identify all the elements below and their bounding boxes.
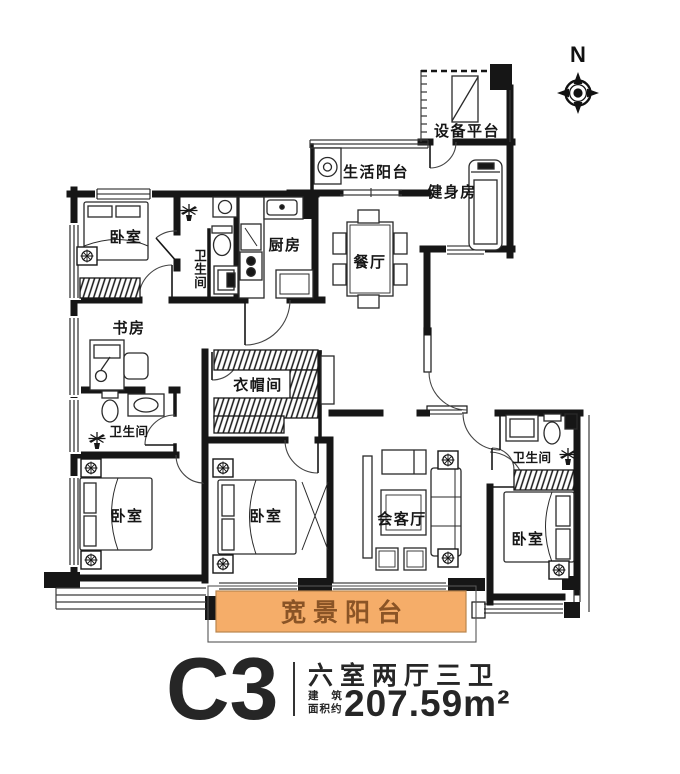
compass-north-label: N <box>570 42 586 67</box>
room-label-bath-east: 卫生间 <box>512 450 551 465</box>
room-label-living: 会客厅 <box>377 510 427 528</box>
compass: N <box>557 42 599 114</box>
vent-icon <box>438 451 458 469</box>
vent-icon <box>213 459 233 477</box>
room-label-bedroom-s: 卧室 <box>249 507 282 525</box>
floor-plan-page: 宽景阳台 卧室 厨房 生活阳台 设备平台 健身房 餐厅 书房 衣帽间 卫生间 卧… <box>0 0 680 774</box>
room-label-cloakroom: 衣帽间 <box>233 376 283 394</box>
room-label-study: 书房 <box>112 319 145 337</box>
vent-icon <box>81 551 101 569</box>
equipment-panel <box>452 76 478 122</box>
area-value: 207.59m² <box>344 683 510 724</box>
area-label-line2: 面积约 <box>308 702 343 715</box>
balcony-label: 宽景阳台 <box>281 598 409 627</box>
bath-east-fixtures <box>506 414 577 444</box>
area-label-line1: 建 筑 <box>307 689 347 702</box>
plant-icon <box>181 204 198 221</box>
treadmill <box>469 160 502 250</box>
room-label-service-balcony: 生活阳台 <box>343 163 409 181</box>
room-label-equipment-platform: 设备平台 <box>434 122 500 140</box>
vent-icon <box>81 459 101 477</box>
room-label-bedroom-nw: 卧室 <box>109 228 142 246</box>
washing-machine <box>314 148 341 184</box>
vent-icon <box>438 549 458 567</box>
bath-master-fixtures <box>102 391 164 422</box>
room-label-kitchen: 厨房 <box>268 236 301 254</box>
compass-center-dot <box>573 88 582 97</box>
room-label-bedroom-sw: 卧室 <box>110 507 143 525</box>
floor-plan: 宽景阳台 卧室 厨房 生活阳台 设备平台 健身房 餐厅 书房 衣帽间 卫生间 卧… <box>0 0 680 774</box>
room-label-bedroom-se: 卧室 <box>511 530 544 548</box>
cloakroom-cabinet <box>321 356 334 404</box>
bed-se <box>504 492 574 562</box>
title-block: C3 六室两厅三卫 建 筑 面积约 207.59m² <box>166 639 510 738</box>
room-label-gym: 健身房 <box>427 183 477 201</box>
vent-icon <box>77 247 97 265</box>
vent-icon <box>213 555 233 573</box>
study-desk <box>90 340 148 390</box>
view-balcony: 宽景阳台 <box>208 586 476 642</box>
plant-icon <box>89 432 106 449</box>
room-label-bath-master: 卫生间 <box>109 424 148 439</box>
vent-icon <box>549 561 569 579</box>
room-label-bath-ensuite: 卫生间 <box>185 249 205 305</box>
unit-code: C3 <box>166 639 279 738</box>
room-label-dining: 餐厅 <box>353 253 386 271</box>
